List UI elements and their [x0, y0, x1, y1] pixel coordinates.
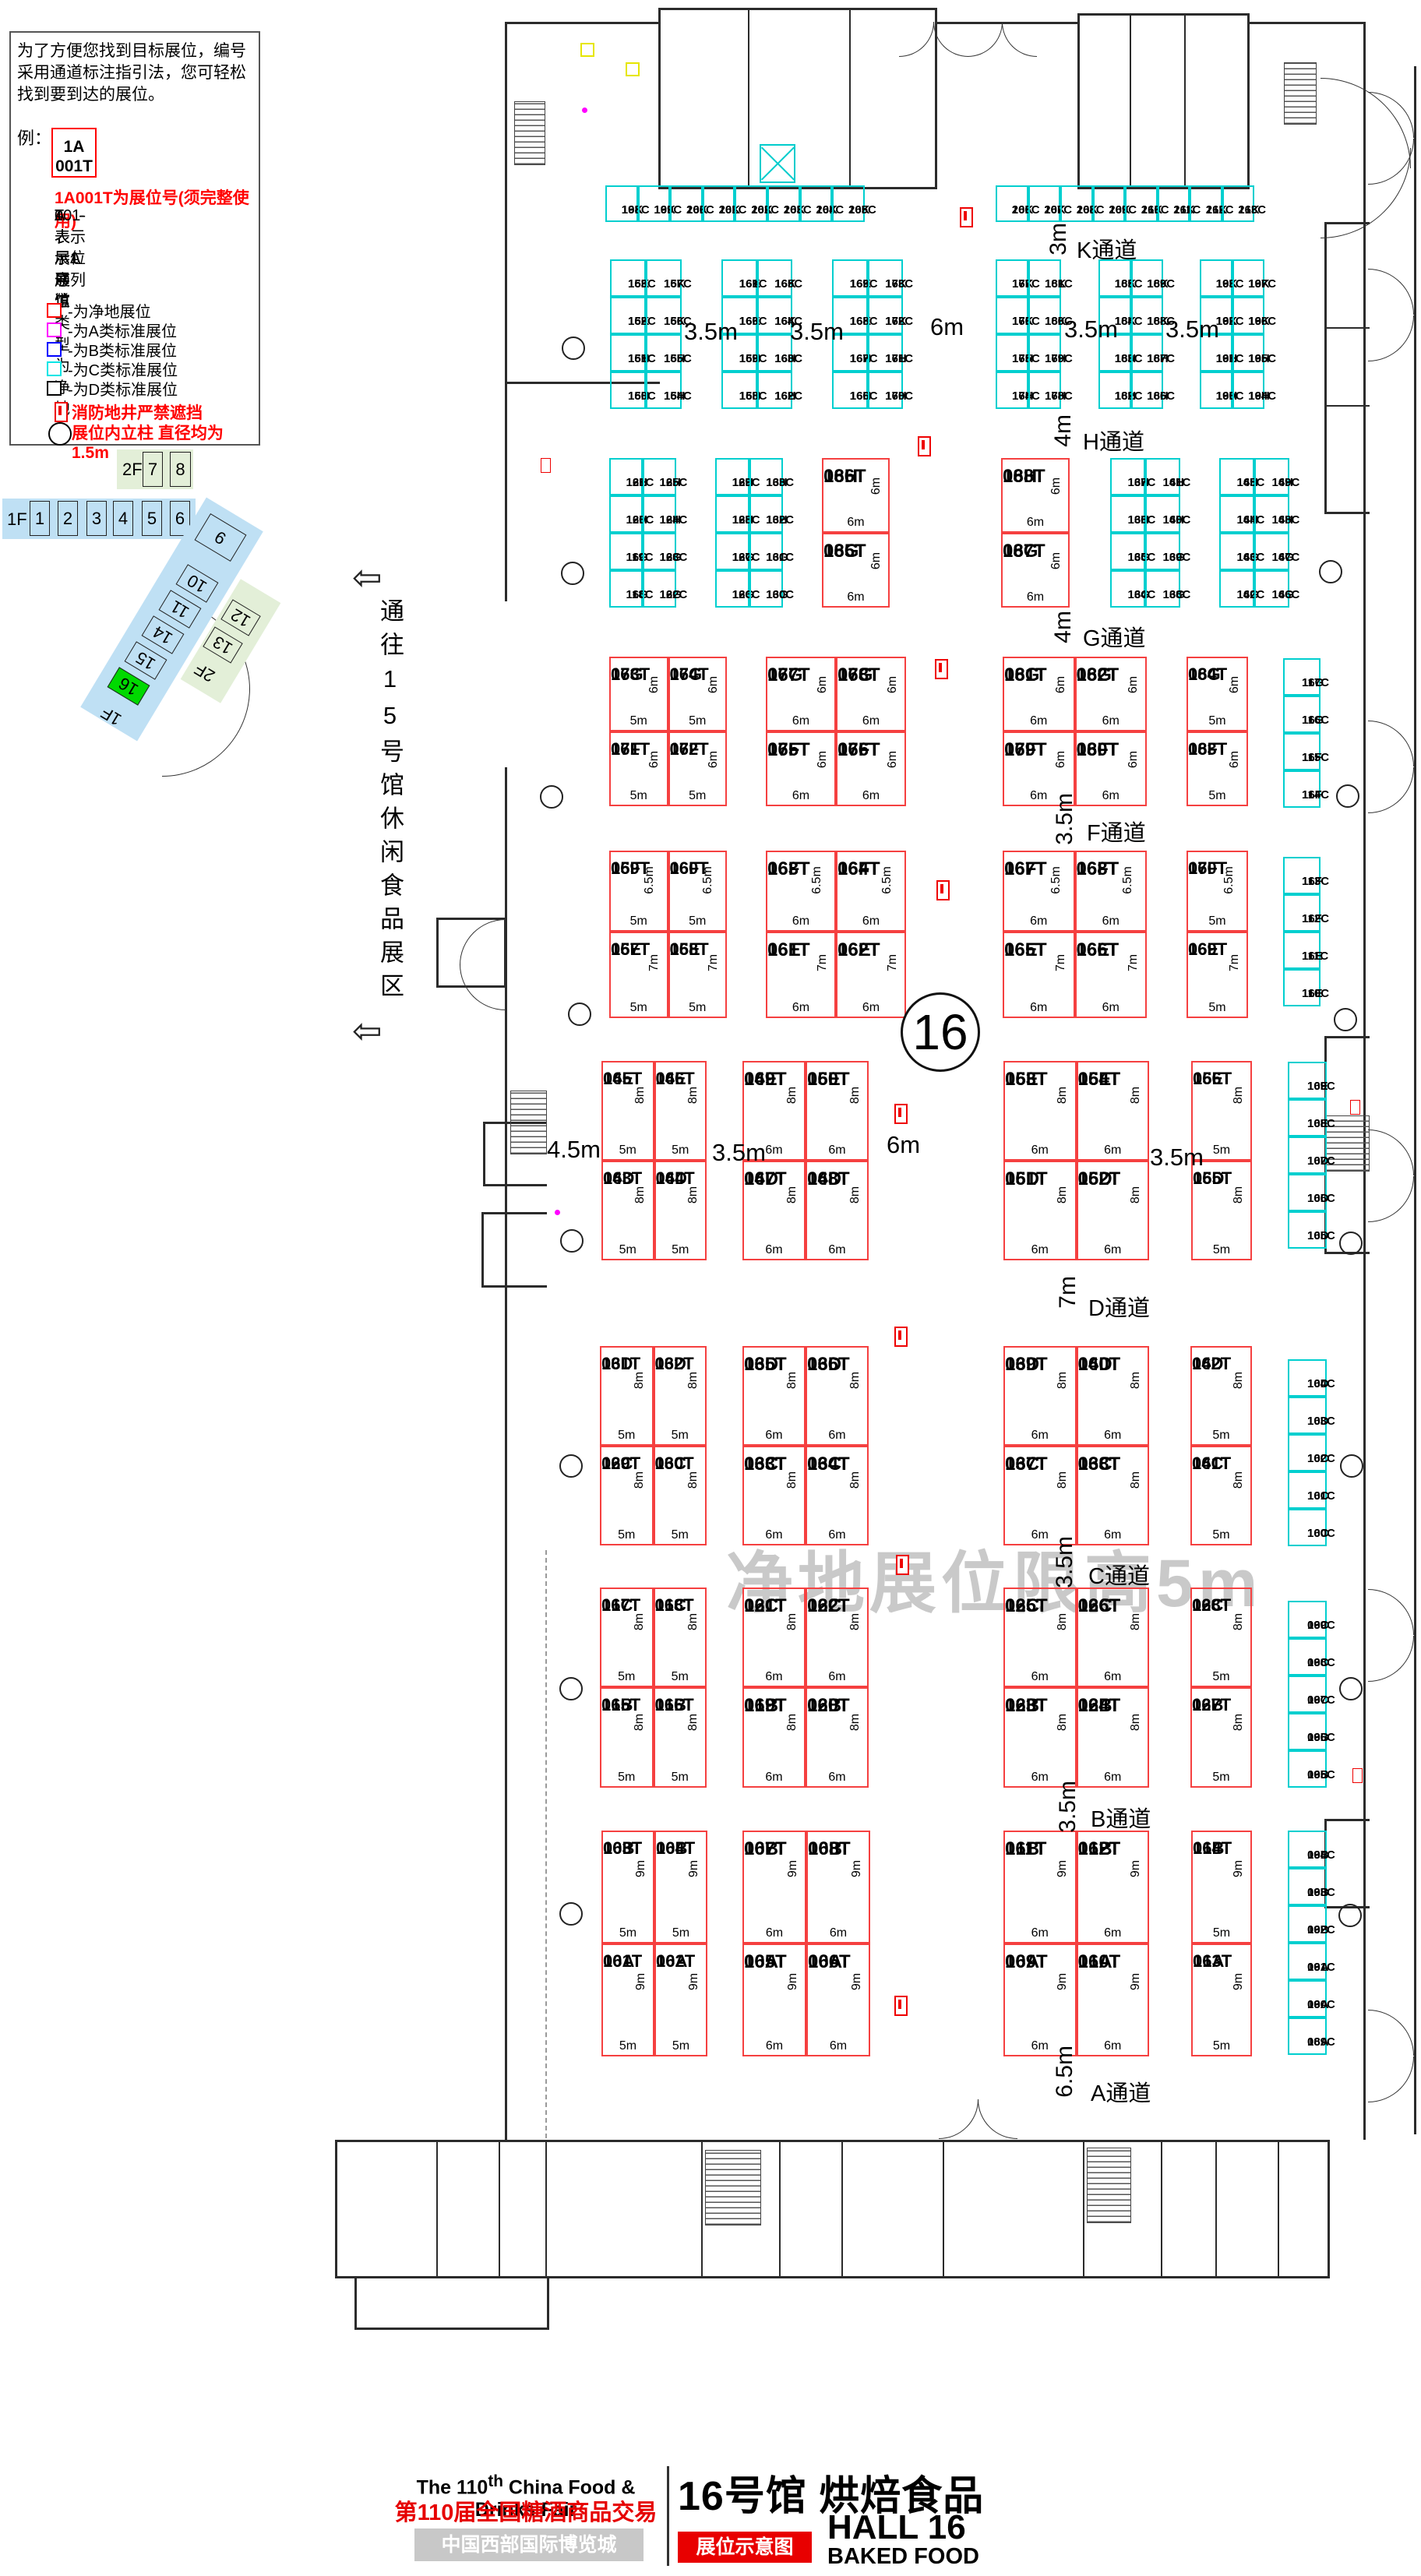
booth-width-label: 5m: [603, 1144, 653, 1158]
booth-number: 056T: [1193, 1070, 1232, 1089]
wall: [1324, 1036, 1370, 1038]
door-arc: [1368, 2010, 1414, 2056]
booth-16G119C: 16G119C: [609, 533, 643, 570]
booth-width-label: 6m: [744, 1771, 804, 1785]
booth-number: 040T: [1078, 1355, 1121, 1376]
booth-number: 055T: [1193, 1169, 1232, 1189]
booth-number: 041T: [1192, 1454, 1231, 1474]
booth-number: 148C: [1272, 514, 1300, 527]
booth-width-label: 5m: [611, 714, 667, 728]
aisle-width-label: 3.5m: [1053, 793, 1077, 845]
booth-width-label: 5m: [1193, 1926, 1250, 1940]
hydrant-marker: [541, 458, 551, 473]
booth-16F067T: 16F067T6.5m6m: [1003, 851, 1075, 932]
booth-16H125C: 16H125C: [643, 458, 676, 495]
booth-16K176C: 16K176C: [996, 297, 1028, 334]
yellow-marker: [580, 43, 594, 57]
wall: [483, 1122, 485, 1186]
booth-depth-label: 6m: [886, 676, 900, 693]
hall-overview-minimap: 2F781F123456910111415161F12132F: [0, 444, 280, 771]
wall: [1083, 2140, 1084, 2276]
booth-width-label: 5m: [601, 1528, 652, 1542]
booth-number: 009T: [1005, 1952, 1048, 1973]
booth-16A013T: 16A013T9m5m: [1191, 1943, 1252, 2056]
booth-16K196C: 16K196C: [1232, 297, 1265, 334]
door-arc: [933, 22, 968, 57]
booth-width-label: 5m: [1192, 1670, 1250, 1684]
booth-width-label: 6m: [808, 2039, 869, 2053]
booth-16A009T: 16A009T9m6m: [1003, 1943, 1077, 2056]
booth-number: 179C: [1045, 353, 1073, 366]
door-arc: [968, 22, 1003, 57]
booth-depth-label: 7m: [707, 954, 721, 971]
minimap-1f-label: 1F: [7, 509, 27, 530]
wall: [849, 8, 851, 187]
booth-16E108C: 16E108C: [1288, 1099, 1327, 1136]
booth-16G081T: 16G081T6m6m: [1003, 657, 1075, 731]
booth-width-label: 6m: [823, 516, 888, 530]
booth-number: 122C: [660, 589, 688, 602]
booth-16K164C: 16K164C: [757, 297, 793, 334]
booth-depth-label: 6m: [816, 751, 830, 768]
hall-topic-en: BAKED FOOD: [827, 2544, 979, 2570]
pillar-circle: [1339, 1232, 1363, 1255]
booth-16F113C: 16F113C: [1283, 857, 1321, 894]
minimap-hall-7: 7: [143, 452, 163, 487]
booth-depth-label: 7m: [1127, 954, 1141, 971]
booth-16D104C: 16D104C: [1288, 1359, 1327, 1397]
booth-depth-label: 8m: [633, 1714, 647, 1731]
booth-number: 100C: [1307, 1528, 1335, 1541]
booth-depth-label: 8m: [633, 1186, 647, 1203]
booth-depth-label: 6m: [1054, 751, 1068, 768]
door-arc: [1368, 269, 1414, 315]
booth-16B094C: 16B094C: [1288, 1831, 1327, 1868]
booth-depth-label: 8m: [633, 1471, 647, 1489]
booth-16K209C: 16K209C: [1093, 185, 1126, 222]
hydrant-marker: [1350, 1100, 1360, 1115]
booth-16C026T: 16C026T8m6m: [1077, 1588, 1150, 1687]
booth-width-label: 6m: [744, 1926, 805, 1940]
booth-number: 093C: [1307, 1887, 1335, 1900]
legend-class-list: -为净地展位-为A类标准展位-为B类标准展位-为C类标准展位-为D类标准展位: [47, 301, 178, 398]
fire-well-icon: [894, 1104, 908, 1124]
booth-16G123C: 16G123C: [643, 533, 676, 570]
booth-width-label: 5m: [1192, 1528, 1250, 1542]
booth-number: 089C: [1307, 2036, 1335, 2049]
booth-depth-label: 8m: [848, 1372, 862, 1389]
booth-depth-label: 8m: [848, 1186, 862, 1203]
wall: [841, 2140, 843, 2276]
booth-number: 067T: [1004, 859, 1047, 880]
booth-depth-label: 8m: [1129, 1714, 1143, 1731]
booth-number: 038T: [1078, 1454, 1121, 1475]
booth-number: 004T: [656, 1839, 695, 1859]
booth-number: 114C: [1302, 789, 1329, 802]
booth-depth-label: 6m: [886, 751, 900, 768]
booth-depth-label: 8m: [686, 1613, 700, 1630]
booth-16K180C: 16K180C: [1028, 297, 1061, 334]
booth-number: 088T: [1003, 467, 1045, 488]
booth-16H145C: 16H145C: [1219, 458, 1254, 495]
booth-16F071T: 16F071T6m5m: [609, 731, 668, 806]
booth-number: 076T: [837, 740, 880, 761]
booth-width-label: 5m: [670, 1001, 726, 1015]
wall: [436, 918, 439, 988]
booth-number: 107C: [1307, 1155, 1335, 1168]
booth-number: 098C: [1307, 1657, 1335, 1670]
booth-number: 073T: [611, 665, 650, 685]
class-label: -为D类标准展位: [68, 377, 178, 400]
aisle-width-label: 3.5m: [1053, 1536, 1077, 1588]
booth-number: 050T: [807, 1070, 850, 1091]
aisle-label: D通道: [1088, 1290, 1150, 1323]
booth-depth-label: 9m: [850, 1973, 864, 1990]
booth-16E046T: 16E046T8m5m: [654, 1061, 707, 1161]
pillar-circle: [562, 337, 585, 360]
booth-width-label: 6m: [767, 714, 834, 728]
booth-16C100C: 16C100C: [1288, 1509, 1327, 1546]
booth-number: 014T: [1193, 1839, 1232, 1859]
booth-16H129C: 16H129C: [715, 458, 749, 495]
booth-16C102C: 16C102C: [1288, 1434, 1327, 1471]
booth-16B092C: 16B092C: [1288, 1905, 1327, 1943]
booth-16D052T: 16D052T8m6m: [1077, 1161, 1150, 1260]
booth-number: 130C: [766, 589, 794, 602]
booth-depth-label: 6m: [707, 676, 721, 693]
booth-16K181C: 16K181C: [1028, 259, 1061, 297]
booth-16K206C: 16K206C: [996, 185, 1028, 222]
aisle-width-label: 3.5m: [1056, 1781, 1080, 1833]
booth-16K185C: 16K185C: [1098, 259, 1131, 297]
door-arc: [1002, 22, 1037, 57]
door-arc: [460, 964, 506, 1010]
booth-number: 035T: [744, 1355, 787, 1376]
wall: [481, 1212, 547, 1214]
booth-number: 063T: [767, 859, 810, 880]
booth-16B012T: 16B012T9m6m: [1077, 1831, 1150, 1943]
booth-width-label: 5m: [603, 1926, 653, 1940]
booth-16G147C: 16G147C: [1254, 533, 1289, 570]
booth-depth-label: 8m: [785, 1087, 799, 1104]
minimap-hall-5: 5: [142, 501, 162, 536]
booth-16G082T: 16G082T6m6m: [1075, 657, 1148, 731]
booth-width-label: 6m: [837, 714, 904, 728]
booth-depth-label: 6m: [1127, 676, 1141, 693]
booth-16G143C: 16G143C: [1219, 533, 1254, 570]
booth-16E109C: 16E109C: [1288, 1062, 1327, 1099]
booth-16E053T: 16E053T8m6m: [1003, 1061, 1077, 1161]
booth-width-label: 5m: [611, 1001, 667, 1015]
booth-number: 187C: [1147, 353, 1175, 366]
pillar-circle: [559, 1454, 583, 1478]
aisle-label: B通道: [1091, 1801, 1151, 1834]
wall: [499, 2140, 500, 2276]
booth-width-label: 6m: [1078, 1243, 1148, 1257]
booth-width-label: 5m: [601, 1429, 652, 1443]
booth-number: 064T: [837, 859, 880, 880]
minimap-hall-2: 2: [58, 501, 78, 536]
booth-16G087T: 16G087T6m6m: [1001, 533, 1070, 608]
booth-depth-label: 8m: [633, 1613, 647, 1630]
booth-16B095C: 16B095C: [1288, 1750, 1327, 1788]
booth-width-label: 6m: [744, 2039, 805, 2053]
booth-depth-label: 8m: [848, 1613, 862, 1630]
booth-16K156C: 16K156C: [646, 297, 682, 334]
booth-depth-label: 8m: [785, 1613, 799, 1630]
booth-width-label: 5m: [1192, 1429, 1250, 1443]
booth-16D051T: 16D051T8m6m: [1003, 1161, 1077, 1260]
booth-number: 071T: [611, 740, 650, 759]
class-color-swatch: [47, 361, 62, 376]
door-arc: [1368, 92, 1414, 138]
booth-16D039T: 16D039T8m6m: [1003, 1346, 1077, 1446]
door-arc: [1368, 2056, 1414, 2102]
booth-number: 213C: [1238, 204, 1266, 217]
booth-16C097C: 16C097C: [1288, 1676, 1327, 1713]
booth-width-label: 5m: [655, 1670, 706, 1684]
booth-depth-label: 6m: [869, 477, 883, 495]
booth-16C037T: 16C037T8m6m: [1003, 1446, 1077, 1545]
booth-width-label: 5m: [603, 2039, 653, 2053]
booth-16B096C: 16B096C: [1288, 1713, 1327, 1750]
booth-depth-label: 6m: [647, 751, 661, 768]
booth-number: 090C: [1307, 1999, 1335, 2012]
booth-number: 109C: [1307, 1080, 1335, 1094]
booth-16K172C: 16K172C: [868, 297, 904, 334]
booth-width-label: 6m: [1078, 1670, 1148, 1684]
booth-depth-label: 8m: [785, 1186, 799, 1203]
booth-depth-label: 8m: [848, 1471, 862, 1489]
booth-16H154C: 16H154C: [646, 372, 682, 409]
minimap-hall-8: 8: [170, 452, 191, 487]
booth-number: 070T: [1188, 859, 1227, 879]
booth-width-label: 6m: [1078, 1926, 1148, 1940]
booth-16E061T: 16E061T7m6m: [766, 932, 836, 1018]
booth-number: 157C: [664, 278, 692, 291]
booth-width-label: 6m: [744, 1528, 804, 1542]
booth-16D105C: 16D105C: [1288, 1211, 1327, 1249]
booth-16D103C: 16D103C: [1288, 1397, 1327, 1434]
aisle-width-label: 4m: [1052, 611, 1075, 643]
wall: [1184, 13, 1186, 187]
booth-depth-label: 6.5m: [1049, 866, 1063, 894]
booth-16C021T: 16C021T8m6m: [742, 1588, 806, 1687]
aisle-width-label: 7m: [1056, 1276, 1080, 1309]
fire-well-icon: [894, 1327, 908, 1347]
door-arc: [939, 2099, 978, 2139]
wall: [354, 2278, 357, 2329]
booth-16H151C: 16H151C: [610, 334, 646, 372]
booth-16H190C: 16H190C: [1200, 372, 1232, 409]
door-arc: [1368, 139, 1414, 185]
booth-width-label: 6m: [1078, 1771, 1148, 1785]
booth-16H141C: 16H141C: [1145, 458, 1180, 495]
booth-number: 034T: [807, 1454, 850, 1475]
wall: [335, 2276, 1330, 2278]
booth-16D042T: 16D042T8m5m: [1190, 1346, 1252, 1446]
booth-depth-label: 8m: [686, 1714, 700, 1731]
booth-number: 010T: [1078, 1952, 1121, 1973]
booth-16B008T: 16B008T9m6m: [806, 1831, 870, 1943]
booth-16A010T: 16A010T9m6m: [1077, 1943, 1150, 2056]
booth-16G117C: 16G117C: [1283, 658, 1321, 696]
booth-16E066T: 16E066T7m6m: [1075, 932, 1148, 1018]
booth-number: 072T: [670, 740, 709, 759]
booth-16H149C: 16H149C: [1254, 458, 1289, 495]
booth-16K212C: 16K212C: [1190, 185, 1222, 222]
booth-16H187C: 16H187C: [1131, 334, 1164, 372]
aisle-width-label: 3m: [1047, 223, 1070, 255]
fire-well-icon: [918, 436, 931, 456]
booth-width-label: 5m: [1192, 1771, 1250, 1785]
booth-number: 149C: [1272, 477, 1300, 490]
booth-number: 048T: [807, 1169, 850, 1190]
booth-number: 097C: [1307, 1694, 1335, 1707]
booth-width-label: 6m: [837, 789, 904, 803]
booth-number: 101C: [1307, 1490, 1335, 1503]
corridor-note: 通往15号馆休闲食品展区: [372, 598, 407, 1006]
booth-16C098C: 16C098C: [1288, 1638, 1327, 1676]
title-divider: [667, 2466, 669, 2566]
booth-16C033T: 16C033T8m6m: [742, 1446, 806, 1545]
wall: [1130, 13, 1131, 187]
booth-number: 173C: [885, 278, 913, 291]
booth-16G135C: 16G135C: [1110, 533, 1145, 570]
booth-number: 103C: [1307, 1415, 1335, 1429]
booth-16H148C: 16H148C: [1254, 495, 1289, 533]
booth-number: 016T: [655, 1696, 694, 1715]
wall: [481, 1285, 547, 1288]
booth-16H128C: 16H128C: [715, 495, 749, 533]
booth-16F080T: 16F080T6m6m: [1075, 731, 1148, 806]
pillar-icon: [48, 422, 72, 446]
booth-16E058T: 16E058T7m5m: [668, 932, 728, 1018]
booth-width-label: 5m: [656, 1926, 706, 1940]
wall: [1324, 405, 1370, 407]
pillar-circle: [1336, 784, 1359, 808]
title-block: The 110th China Food & Drinks Fair 第110届…: [366, 2461, 1067, 2574]
booth-depth-label: 7m: [1228, 954, 1242, 971]
wall: [483, 1184, 547, 1186]
booth-number: 163C: [774, 353, 802, 366]
booth-16H170C: 16H170C: [868, 372, 904, 409]
booth-16E057T: 16E057T7m5m: [609, 932, 668, 1018]
booth-16F115C: 16F115C: [1283, 733, 1321, 770]
booth-number: 125C: [660, 477, 688, 490]
wall: [1278, 2140, 1279, 2276]
booth-depth-label: 6m: [1054, 676, 1068, 693]
legend-class-item: -为C类标准展位: [47, 359, 178, 379]
booth-depth-label: 8m: [686, 1087, 700, 1104]
booth-width-label: 6m: [767, 1001, 834, 1015]
booth-depth-label: 8m: [785, 1471, 799, 1489]
booth-width-label: 6m: [1005, 1144, 1075, 1158]
booth-number: 110C: [1302, 988, 1329, 1001]
door-arc: [1368, 721, 1414, 766]
booth-16H178C: 16H178C: [1028, 372, 1061, 409]
booth-number: 116C: [1302, 714, 1329, 728]
door-arc: [1368, 1129, 1414, 1175]
booth-16C025T: 16C025T8m6m: [1003, 1588, 1077, 1687]
booth-16A005T: 16A005T9m6m: [742, 1943, 806, 2056]
booth-16G126C: 16G126C: [715, 570, 749, 608]
pillar-circle: [561, 562, 584, 585]
dimension-label: 6m: [930, 313, 964, 341]
booth-width-label: 5m: [655, 1771, 706, 1785]
booth-16K177C: 16K177C: [996, 259, 1028, 297]
booth-16H175C: 16H175C: [996, 334, 1028, 372]
booth-16F114C: 16F114C: [1283, 770, 1321, 808]
booth-16K201C: 16K201C: [703, 185, 735, 222]
booth-number: 003T: [603, 1839, 642, 1859]
booth-16A001T: 16A001T9m5m: [601, 1943, 654, 2056]
booth-number: 057T: [611, 940, 650, 960]
booth-number: 061T: [767, 940, 810, 961]
booth-number: 053T: [1005, 1070, 1048, 1091]
booth-number: 019T: [744, 1696, 787, 1717]
booth-16K189C: 16K189C: [1131, 259, 1164, 297]
booth-16H182C: 16H182C: [1098, 372, 1131, 409]
booth-depth-label: 8m: [1129, 1087, 1143, 1104]
booth-number: 024T: [1078, 1696, 1121, 1717]
booth-depth-label: 8m: [633, 1372, 647, 1389]
aisle-label: G通道: [1083, 620, 1146, 653]
booth-number: 102C: [1307, 1453, 1335, 1466]
booth-16H162C: 16H162C: [757, 372, 793, 409]
booth-number: 123C: [660, 551, 688, 565]
booth-width-label: 6m: [808, 1926, 869, 1940]
booth-16H144C: 16H144C: [1219, 495, 1254, 533]
wall: [335, 2140, 337, 2278]
booth-width-label: 6m: [807, 1243, 867, 1257]
aisle-width-label: 6.5m: [1053, 2046, 1077, 2098]
booth-depth-label: 8m: [686, 1186, 700, 1203]
booth-depth-label: 9m: [1129, 1973, 1143, 1990]
door-arc: [978, 2099, 1017, 2139]
booth-number: 096C: [1307, 1732, 1335, 1745]
wall: [545, 2140, 547, 2276]
booth-depth-label: 8m: [1056, 1613, 1070, 1630]
booth-number: 082T: [1077, 665, 1120, 686]
booth-number: 054T: [1078, 1070, 1121, 1091]
booth-depth-label: 9m: [687, 1860, 701, 1877]
hydrant-marker: [1352, 1768, 1363, 1783]
booth-width-label: 6m: [807, 1771, 867, 1785]
booth-16F060T: 16F060T6.5m5m: [668, 851, 728, 932]
booth-16H133C: 16H133C: [749, 458, 784, 495]
door-arc: [1368, 1589, 1414, 1635]
booth-16G116C: 16G116C: [1283, 696, 1321, 733]
booth-16D107C: 16D107C: [1288, 1136, 1327, 1174]
booth-16B011T: 16B011T9m6m: [1003, 1831, 1077, 1943]
booth-width-label: 6m: [1005, 1429, 1075, 1443]
dimension-label: 3.5m: [790, 318, 844, 346]
wall: [658, 8, 661, 189]
booth-16B004T: 16B004T9m5m: [654, 1831, 707, 1943]
booth-number: 197C: [1248, 278, 1276, 291]
booth-16A006T: 16A006T9m6m: [806, 1943, 870, 2056]
wall: [748, 8, 749, 187]
left-arrow-icon: ⇦: [352, 1010, 383, 1052]
booth-number: 012T: [1078, 1839, 1121, 1860]
aisle-label: A通道: [1091, 2075, 1151, 2108]
wall: [1077, 13, 1250, 16]
booth-16C034T: 16C034T8m6m: [806, 1446, 869, 1545]
booth-16C099C: 16C099C: [1288, 1601, 1327, 1638]
booth-depth-label: 8m: [848, 1714, 862, 1731]
booth-depth-label: 6m: [647, 676, 661, 693]
